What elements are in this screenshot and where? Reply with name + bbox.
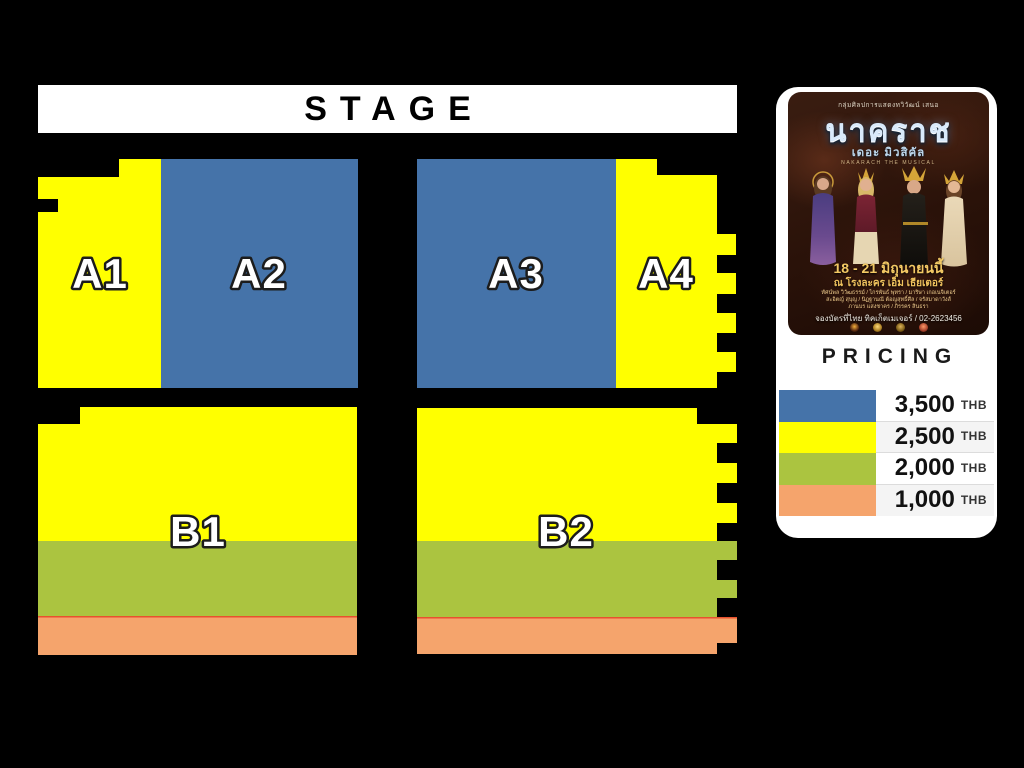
price-amount: 3,500 xyxy=(895,391,955,419)
price-row-2500: 2,500 THB xyxy=(779,422,994,454)
poster-venue: ณ โรงละคร เอ็ม เธียเตอร์ xyxy=(788,276,989,291)
seating-chart-page: STAGE A1 A2 A3 A4 B1 B2 กลุ่มศิลปการแสดง… xyxy=(0,0,1024,768)
section-B2-divider xyxy=(417,617,737,619)
poster-cast-credits: ทัศน์พล วิวัฒธรรม์ / ไกรพันธ์ พุทรา / มา… xyxy=(792,290,985,311)
poster-cast-line: ภานบร แสงชาคร / ภิรรคร สินธรา xyxy=(792,304,985,311)
section-A1-label: A1 xyxy=(72,250,128,297)
section-B1-orange[interactable] xyxy=(38,617,357,655)
price-swatch-blue xyxy=(779,390,876,422)
sponsor-logo-icon xyxy=(873,323,882,332)
price-swatch-orange xyxy=(779,485,876,517)
price-currency: THB xyxy=(961,429,987,444)
price-swatch-green xyxy=(779,453,876,485)
section-B2-orange[interactable] xyxy=(417,618,737,654)
pricing-title: PRICING xyxy=(776,345,997,369)
pricing-legend: 3,500 THB 2,500 THB 2,000 THB xyxy=(779,390,994,516)
sponsor-logo-icon xyxy=(896,323,905,332)
poster-cast-line: ทัศน์พล วิวัฒธรรม์ / ไกรพันธ์ พุทรา / มา… xyxy=(792,290,985,297)
price-row-3500: 3,500 THB xyxy=(779,390,994,422)
price-cell: 3,500 THB xyxy=(876,390,994,422)
section-B1-divider xyxy=(38,616,357,618)
price-amount: 1,000 xyxy=(895,486,955,514)
poster-cast-line: สะอิตญ์ สุบุญ / นิฏฐานณี ต้อญสุทธิ์ศีล /… xyxy=(792,297,985,304)
price-currency: THB xyxy=(961,493,987,508)
price-amount: 2,000 xyxy=(895,454,955,482)
price-row-2000: 2,000 THB xyxy=(779,453,994,485)
price-currency: THB xyxy=(961,461,987,476)
section-B1-label: B1 xyxy=(170,508,226,555)
section-B2-label: B2 xyxy=(538,508,594,555)
price-row-1000: 1,000 THB xyxy=(779,485,994,517)
section-A2-label: A2 xyxy=(231,250,287,297)
price-amount: 2,500 xyxy=(895,423,955,451)
section-A4-label: A4 xyxy=(638,250,694,297)
info-panel: กลุ่มศิลปการแสดงทวิวัฒน์ เสนอ นาคราช เดอ… xyxy=(776,87,997,538)
price-currency: THB xyxy=(961,398,987,413)
price-swatch-yellow xyxy=(779,422,876,454)
price-cell: 2,000 THB xyxy=(876,453,994,485)
price-cell: 2,500 THB xyxy=(876,422,994,454)
performers-illustration xyxy=(796,166,981,268)
section-A3-label: A3 xyxy=(488,250,544,297)
sponsor-logo-icon xyxy=(850,323,859,332)
price-cell: 1,000 THB xyxy=(876,485,994,517)
poster-sponsor-logos xyxy=(788,323,989,332)
sponsor-logo-icon xyxy=(919,323,928,332)
show-poster: กลุ่มศิลปการแสดงทวิวัฒน์ เสนอ นาคราช เดอ… xyxy=(788,92,989,335)
